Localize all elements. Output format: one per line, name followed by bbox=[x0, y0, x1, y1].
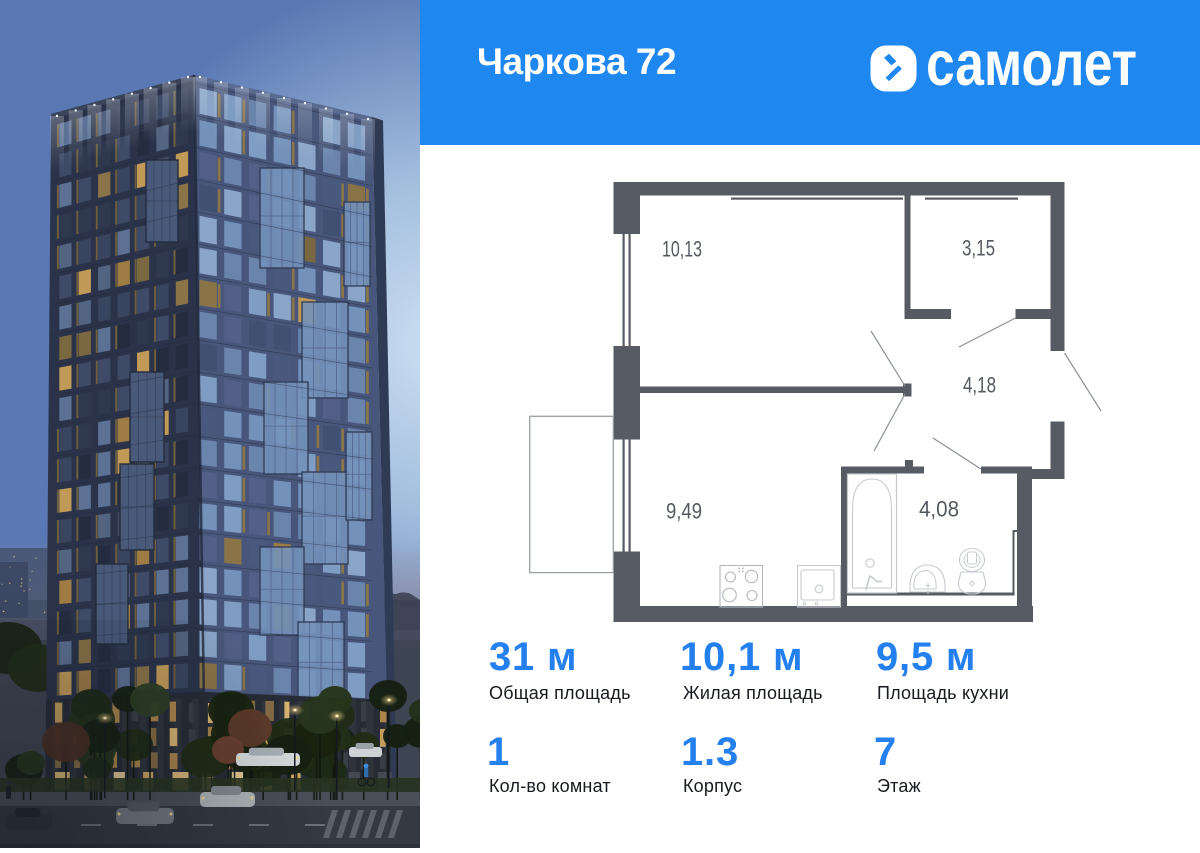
svg-text:10,13: 10,13 bbox=[662, 237, 702, 262]
svg-text:4,08: 4,08 bbox=[919, 497, 959, 522]
svg-text:4,18: 4,18 bbox=[963, 373, 996, 398]
svg-text:9,49: 9,49 bbox=[666, 499, 702, 524]
svg-text:3,15: 3,15 bbox=[962, 236, 995, 261]
